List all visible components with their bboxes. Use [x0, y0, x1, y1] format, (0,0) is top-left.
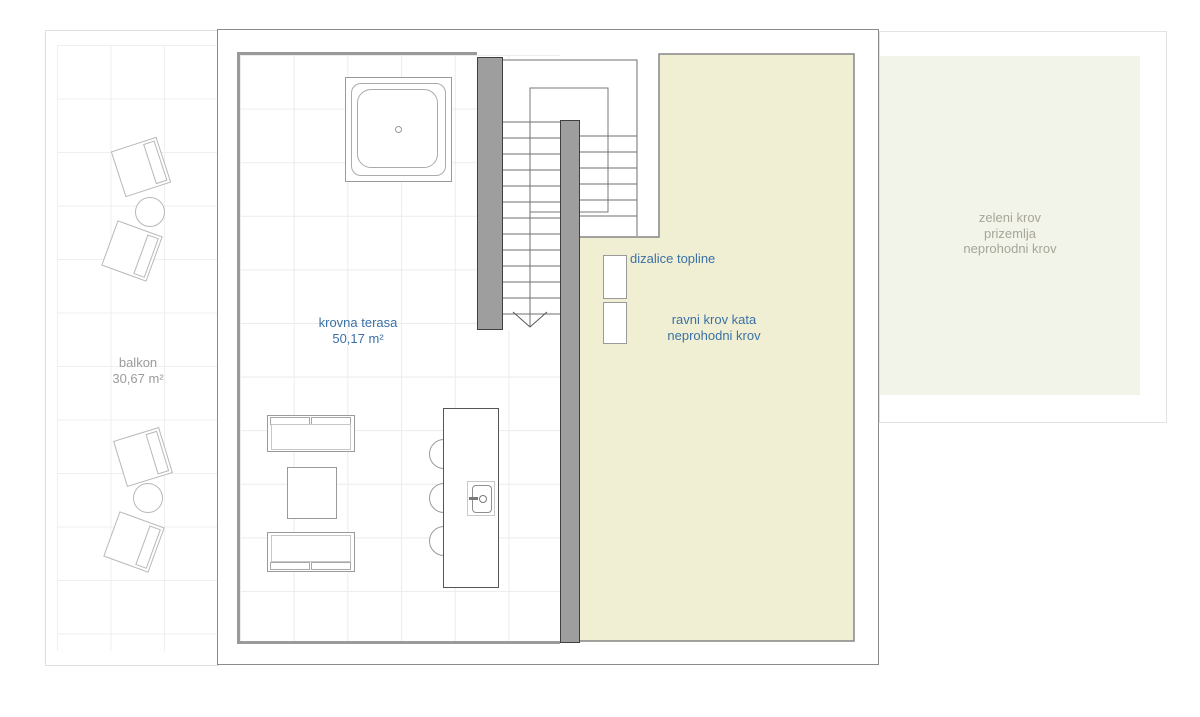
stair-wall	[560, 120, 580, 643]
sofa-cushion	[311, 562, 351, 570]
green-roof-line3: neprohodni krov	[930, 241, 1090, 257]
balcony-side-table	[135, 197, 165, 227]
outdoor-sofa	[267, 415, 355, 452]
parapet-wall	[237, 52, 477, 55]
hot-tub	[345, 77, 452, 182]
stairwell-background	[499, 58, 562, 330]
flat-roof-line2: neprohodni krov	[634, 328, 794, 344]
coffee-table	[287, 467, 337, 519]
flat-roof-label: ravni krov kata neprohodni krov	[634, 312, 794, 343]
sofa-seat	[271, 424, 351, 450]
sofa-seat	[271, 535, 351, 562]
flat-roof-line1: ravni krov kata	[634, 312, 794, 328]
outdoor-sofa	[267, 532, 355, 572]
parapet-wall	[237, 641, 560, 644]
heat-pump-unit	[603, 302, 627, 344]
sink	[467, 481, 495, 516]
roof-terrace-label: krovna terasa 50,17 m²	[278, 315, 438, 346]
sofa-cushion	[270, 562, 310, 570]
stair-wall	[477, 57, 503, 330]
balcony-name: balkon	[58, 355, 218, 371]
balcony-label: balkon 30,67 m²	[58, 355, 218, 386]
hot-tub-drain	[395, 126, 402, 133]
roof-terrace-name: krovna terasa	[278, 315, 438, 331]
green-roof-label: zeleni krov prizemlja neprohodni krov	[930, 210, 1090, 257]
balcony-area: 30,67 m²	[58, 371, 218, 387]
roof-terrace-area: 50,17 m²	[278, 331, 438, 347]
heat-pump-unit	[603, 255, 627, 299]
balcony-side-table	[133, 483, 163, 513]
parapet-wall	[237, 52, 240, 644]
green-roof-line2: prizemlja	[930, 226, 1090, 242]
faucet-icon	[469, 497, 478, 500]
heat-pumps-label: dizalice topline	[630, 251, 715, 267]
roof-floor-plan: balkon 30,67 m² krovna terasa 50,17 m² d…	[0, 0, 1200, 717]
faucet-icon	[479, 495, 487, 503]
green-roof-line1: zeleni krov	[930, 210, 1090, 226]
